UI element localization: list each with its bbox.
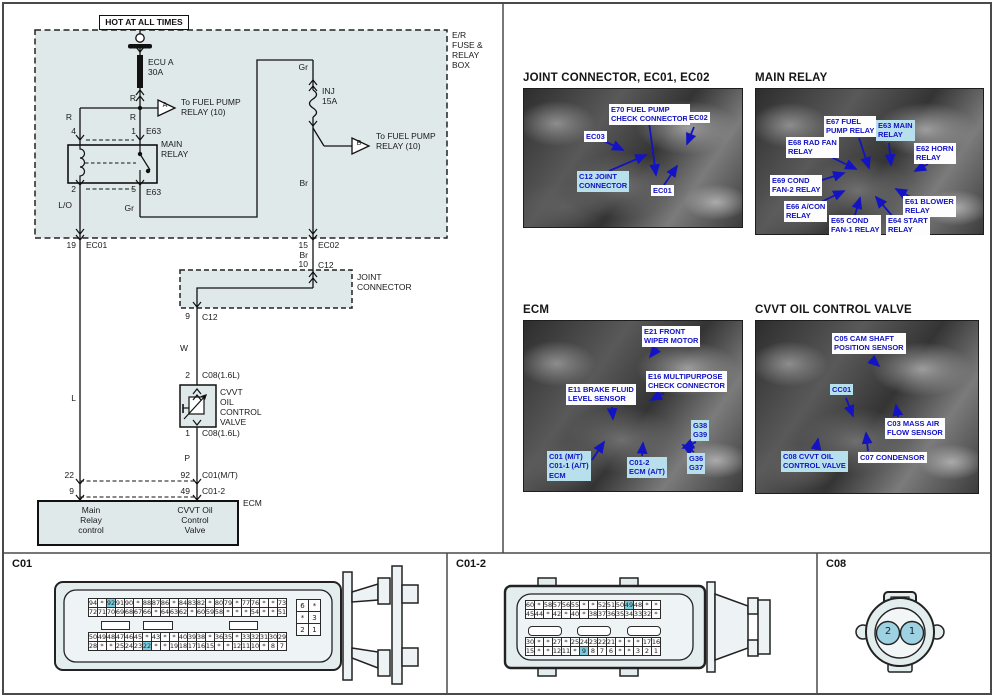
wire-color-br-top: Br	[288, 178, 308, 188]
c01-pin-grid-top: 94*929190*888786*848382*8079*7776**73727…	[88, 598, 287, 617]
panel-title-main-relay: MAIN RELAY	[755, 72, 828, 84]
cvvt-valve-label: CVVT OIL CONTROL VALVE	[220, 387, 262, 427]
pin-9-label: 9	[54, 486, 74, 496]
er-box-label: E/R FUSE & RELAY BOX	[452, 30, 483, 70]
c01-2-pin-grid-bottom: 30**27*2524232221***171615**1211*9876**3…	[525, 637, 661, 656]
callout-e11-brake-fluid-level-sensor: E11 BRAKE FLUID LEVEL SENSOR	[566, 384, 636, 405]
c08-pin-1-number: 1	[903, 626, 921, 637]
c01-2-keyway	[577, 626, 611, 636]
callout-c05-camshaft-position-sensor: C05 CAM SHAFT POSITION SENSOR	[832, 333, 906, 354]
panel-title-cvvt-oil-control-valve: CVVT OIL CONTROL VALVE	[755, 304, 912, 316]
c01-2-pin-grid-top: 60*58575655**5251504948**4544*42*40*3837…	[525, 600, 661, 619]
c01mt-label: C01(M/T)	[202, 470, 238, 480]
c01-pin-grid-side: 6**321	[296, 599, 321, 636]
connector-c01-2-title: C01-2	[456, 558, 486, 570]
ecm-cvvt-function: CVVT Oil Control Valve	[158, 505, 232, 535]
c01-2-keyway	[627, 626, 661, 636]
callout-g36-g37: G36 G37	[687, 453, 705, 474]
ecm-label: ECM	[243, 498, 262, 508]
callout-ec02: EC02	[687, 112, 710, 123]
callout-c08-cvvt-oil-control-valve: C08 CVVT OIL CONTROL VALVE	[781, 451, 848, 472]
pin-cell-51: 51	[277, 607, 287, 617]
callout-e70-fuel-pump-check-connector: E70 FUEL PUMP CHECK CONNECTOR	[609, 104, 690, 125]
e63-top-label: E63	[146, 126, 161, 136]
pin-9-c12-label: 9	[172, 311, 190, 321]
pin-92-label: 92	[170, 470, 190, 480]
pin-49-label: 49	[170, 486, 190, 496]
pin-10-label: 10	[290, 259, 308, 269]
c12-top-label: C12	[318, 260, 334, 270]
pin-22-label: 22	[54, 470, 74, 480]
c01-pin-grid-bottom: 504948474645*43**403938*3635*33323130292…	[88, 632, 287, 651]
pin-2-label: 2	[62, 184, 76, 194]
c01-keyway	[229, 621, 258, 630]
connector-c08-title: C08	[826, 558, 846, 570]
callout-e68-rad-fan-relay: E68 RAD FAN RELAY	[786, 137, 839, 158]
callout-e69-cond-fan2-relay: E69 COND FAN-2 RELAY	[770, 175, 822, 196]
wire-color-p: P	[176, 453, 190, 463]
wiring-diagram-page: HOT AT ALL TIMES E/R FUSE & RELAY BOX EC…	[0, 0, 994, 697]
wire-color-gr-top: Gr	[286, 62, 308, 72]
callout-cc01: CC01	[830, 384, 853, 395]
callout-c12-joint-connector: C12 JOINT CONNECTOR	[577, 171, 629, 192]
c12-bottom-label: C12	[202, 312, 218, 322]
c08-top-label: C08(1.6L)	[202, 370, 240, 380]
e63-bottom-label: E63	[146, 187, 161, 197]
wire-color-gr-bottom: Gr	[110, 203, 134, 213]
callout-c03-mass-air-flow-sensor: C03 MASS AIR FLOW SENSOR	[885, 418, 945, 439]
callout-c07-condensor: C07 CONDENSOR	[858, 452, 927, 463]
pin-15-label: 15	[290, 240, 308, 250]
wire-color-r-left: R	[58, 112, 72, 122]
pin-5-label: 5	[122, 184, 136, 194]
panel-title-ecm: ECM	[523, 304, 549, 316]
wire-color-l: L	[62, 393, 76, 403]
c08-pin-2-number: 2	[879, 626, 897, 637]
wire-color-lo: L/O	[48, 200, 72, 210]
junction-dot	[138, 106, 142, 110]
panel-title-joint-connector: JOINT CONNECTOR, EC01, EC02	[523, 72, 710, 84]
pin-cell-1: 1	[308, 623, 321, 636]
pin-1-label: 1	[122, 126, 136, 136]
triangle-a-letter: A	[158, 102, 172, 110]
callout-e67-fuel-pump-relay: E67 FUEL PUMP RELAY	[824, 116, 876, 137]
triangle-b-letter: B	[352, 140, 366, 148]
ecm-main-relay-function: Main Relay control	[60, 505, 122, 535]
c01-2-keyway	[528, 626, 562, 636]
callout-e62-horn-relay: E62 HORN RELAY	[914, 143, 956, 164]
callout-e61-blower-relay: E61 BLOWER RELAY	[903, 196, 956, 217]
main-relay-label: MAIN RELAY	[161, 139, 188, 159]
c01-keyway	[143, 621, 173, 630]
callout-e63-main-relay: E63 MAIN RELAY	[876, 120, 915, 141]
callout-c01-ecm: C01 (M/T) C01-1 (A/T) ECM	[547, 451, 591, 481]
callout-e21-front-wiper-motor: E21 FRONT WIPER MOTOR	[642, 326, 700, 347]
callout-e16-multipurpose-check-connector: E16 MULTIPURPOSE CHECK CONNECTOR	[646, 371, 727, 392]
callout-c01-2-ecm-at: C01-2 ECM (A/T)	[627, 457, 667, 478]
fuse-ecu-a-symbol	[137, 55, 143, 88]
to-fuel-pump-relay-b-label: To FUEL PUMP RELAY (10)	[376, 131, 436, 151]
callout-g38-g39: G38 G39	[691, 420, 709, 441]
wire-color-w: W	[172, 343, 188, 353]
connector-c01-title: C01	[12, 558, 32, 570]
c08-bottom-label: C08(1.6L)	[202, 428, 240, 438]
pin-cell-7: 7	[277, 641, 287, 651]
joint-connector-label: JOINT CONNECTOR	[357, 272, 412, 292]
fuse-inj-label: INJ 15A	[322, 86, 337, 106]
ec02-label: EC02	[318, 240, 339, 250]
callout-ec01: EC01	[651, 185, 674, 196]
ec01-label: EC01	[86, 240, 107, 250]
pin-1-c08-label: 1	[172, 428, 190, 438]
wire-color-r-right: R	[120, 112, 136, 122]
pin-2-c08-label: 2	[172, 370, 190, 380]
pin-cell-1: 1	[651, 646, 661, 656]
to-fuel-pump-relay-a-label: To FUEL PUMP RELAY (10)	[181, 97, 241, 117]
pin-19-label: 19	[58, 240, 76, 250]
callout-e64-start-relay: E64 START RELAY	[886, 215, 930, 236]
fuse-ecu-a-label: ECU A 30A	[148, 57, 174, 77]
callout-e66-acon-relay: E66 A/CON RELAY	[784, 201, 827, 222]
callout-ec03: EC03	[584, 131, 607, 142]
photo-main-relay: E67 FUEL PUMP RELAY E63 MAIN RELAY E68 R…	[755, 88, 984, 235]
photo-joint-connector: E70 FUEL PUMP CHECK CONNECTOR EC03 C12 J…	[523, 88, 743, 228]
photo-ecm: E21 FRONT WIPER MOTOR E16 MULTIPURPOSE C…	[523, 320, 743, 492]
joint-connector-box	[180, 270, 352, 308]
pin-cell-unused: *	[651, 609, 661, 619]
c01-keyway	[101, 621, 130, 630]
photo-cvvt-valve: C05 CAM SHAFT POSITION SENSOR CC01 C03 M…	[755, 320, 979, 494]
wire-color-r-top: R	[122, 93, 136, 103]
pin-4-label: 4	[62, 126, 76, 136]
c01-2-wire-label: C01-2	[202, 486, 225, 496]
callout-e65-cond-fan1-relay: E65 COND FAN-1 RELAY	[829, 215, 881, 236]
hot-at-all-times-label: HOT AT ALL TIMES	[99, 15, 189, 30]
